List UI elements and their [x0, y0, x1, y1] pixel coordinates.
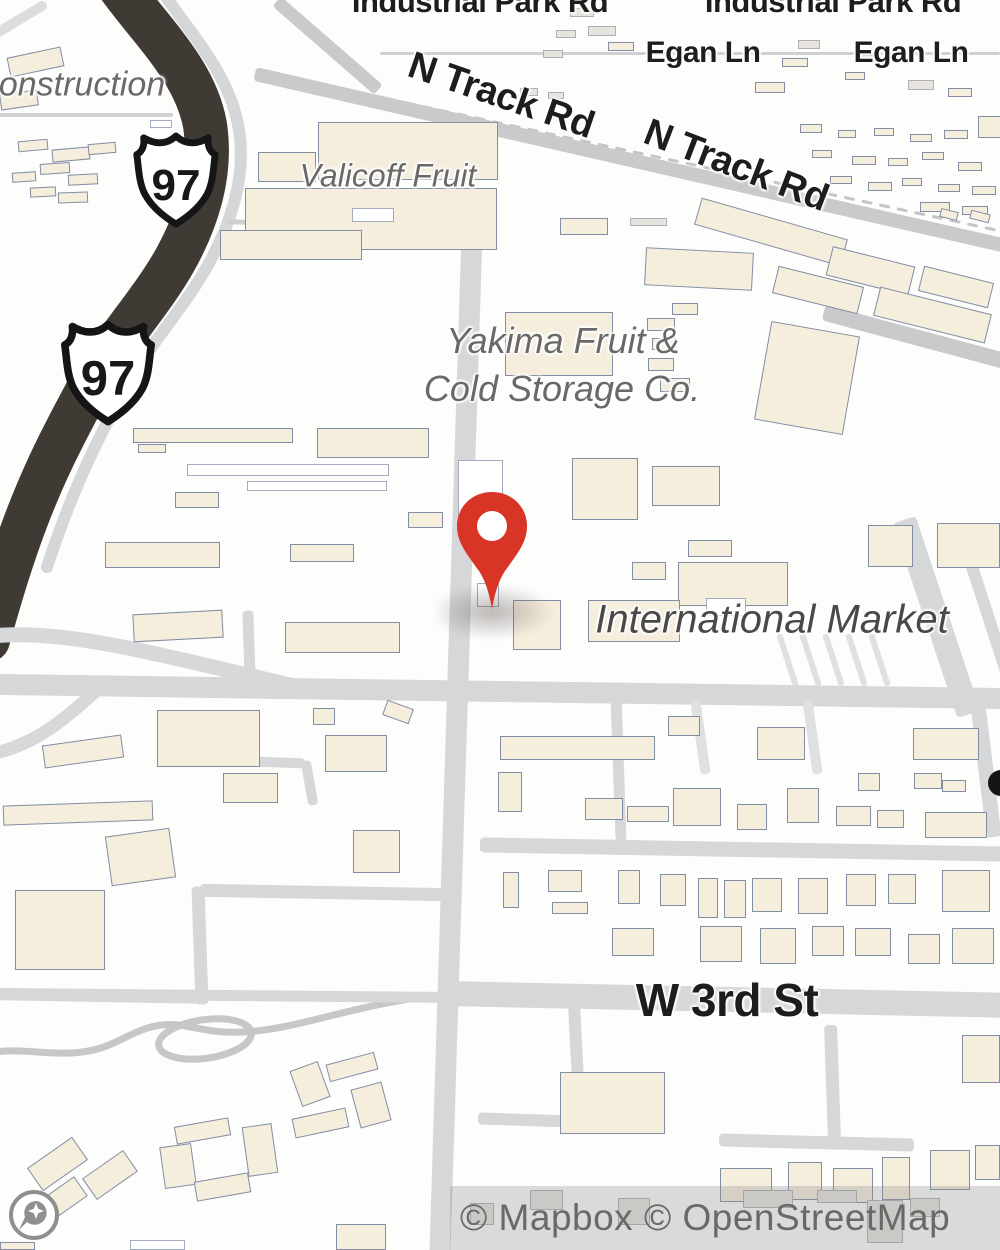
us-route-shield: 97: [54, 319, 162, 427]
attribution-bar: © Mapbox © OpenStreetMap: [450, 1186, 1000, 1250]
map-canvas[interactable]: Industrial Park RdIndustrial Park RdEgan…: [0, 0, 1000, 1250]
location-pin-icon[interactable]: [452, 487, 532, 613]
shield-route-number: 97: [54, 325, 162, 433]
attribution-link[interactable]: © Mapbox © OpenStreetMap: [450, 1197, 950, 1239]
mapbox-logo[interactable]: [8, 1189, 60, 1241]
shield-route-number: 97: [127, 137, 225, 235]
us-route-shield: 97: [127, 131, 225, 229]
